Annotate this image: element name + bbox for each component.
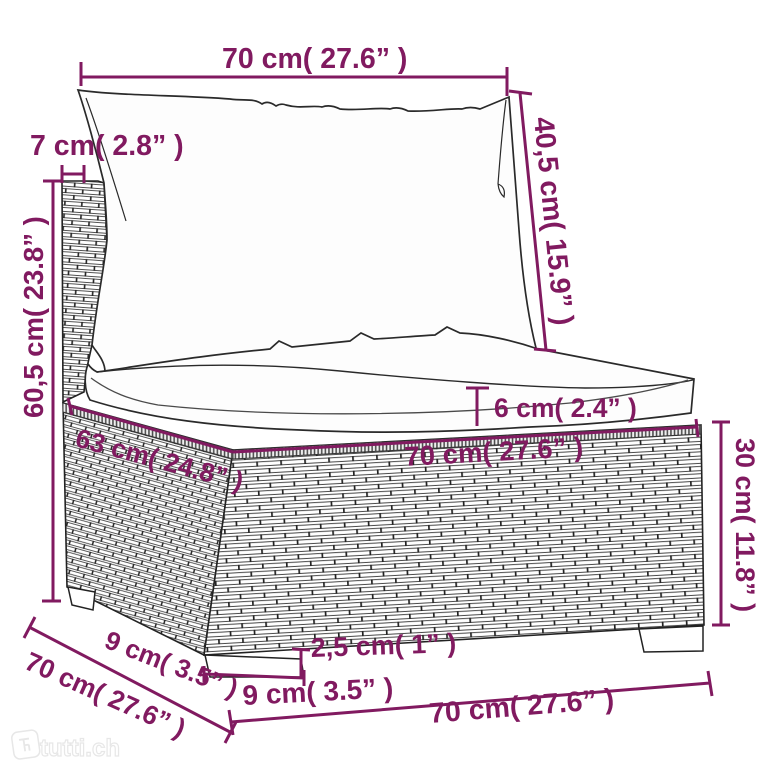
svg-text:60,5 cm( 23.8” ): 60,5 cm( 23.8” ) <box>18 216 49 418</box>
svg-text:7 cm( 2.8” ): 7 cm( 2.8” ) <box>30 130 184 162</box>
svg-text:30 cm( 11.8” ): 30 cm( 11.8” ) <box>730 438 760 612</box>
svg-text:6 cm( 2.4” ): 6 cm( 2.4” ) <box>494 393 637 423</box>
svg-text:tutti.ch: tutti.ch <box>40 735 120 762</box>
svg-text:2,5 cm( 1” ): 2,5 cm( 1” ) <box>310 628 457 663</box>
svg-text:70 cm( 27.6” ): 70 cm( 27.6” ) <box>222 43 407 75</box>
